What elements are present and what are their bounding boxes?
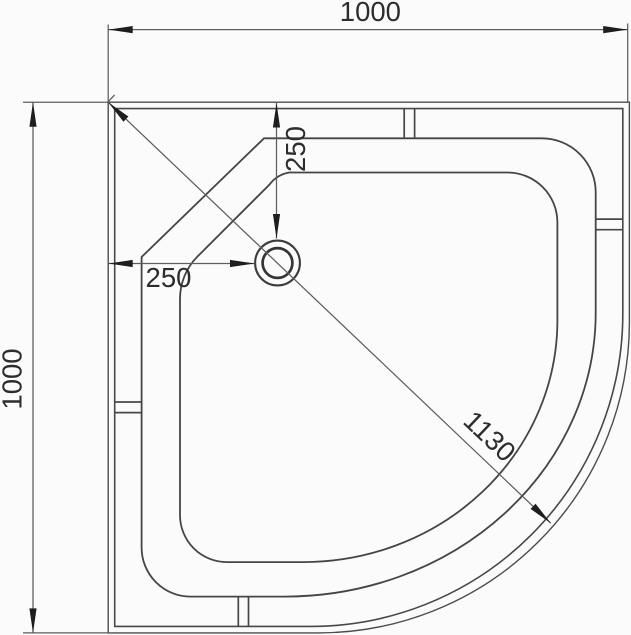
svg-text:250: 250 bbox=[280, 126, 311, 172]
svg-text:1000: 1000 bbox=[340, 0, 401, 27]
svg-text:250: 250 bbox=[146, 262, 192, 293]
svg-text:1000: 1000 bbox=[0, 348, 27, 409]
